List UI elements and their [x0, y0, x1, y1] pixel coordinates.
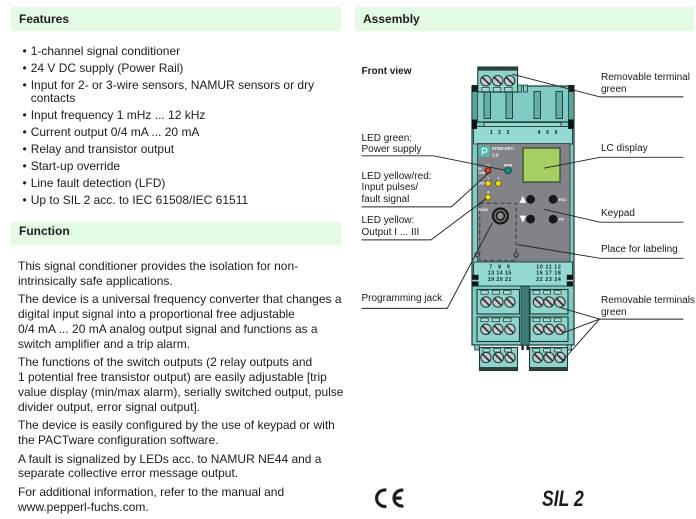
svg-text:ESC: ESC [559, 198, 567, 202]
svg-text:3: 3 [487, 190, 489, 194]
svg-text:13 14 15: 13 14 15 [488, 270, 512, 276]
svg-text:KFD2-UFC-: KFD2-UFC- [492, 146, 515, 151]
svg-text:1.D: 1.D [492, 153, 499, 158]
svg-text:22 23 24: 22 23 24 [536, 277, 561, 283]
svg-text:2: 2 [497, 176, 499, 180]
svg-text:OK: OK [559, 218, 565, 222]
svg-text:16 17 18: 16 17 18 [536, 270, 561, 276]
svg-text:1: 1 [487, 176, 489, 180]
svg-text:19 20 21: 19 20 21 [488, 277, 512, 283]
svg-text:RS232: RS232 [478, 208, 488, 212]
